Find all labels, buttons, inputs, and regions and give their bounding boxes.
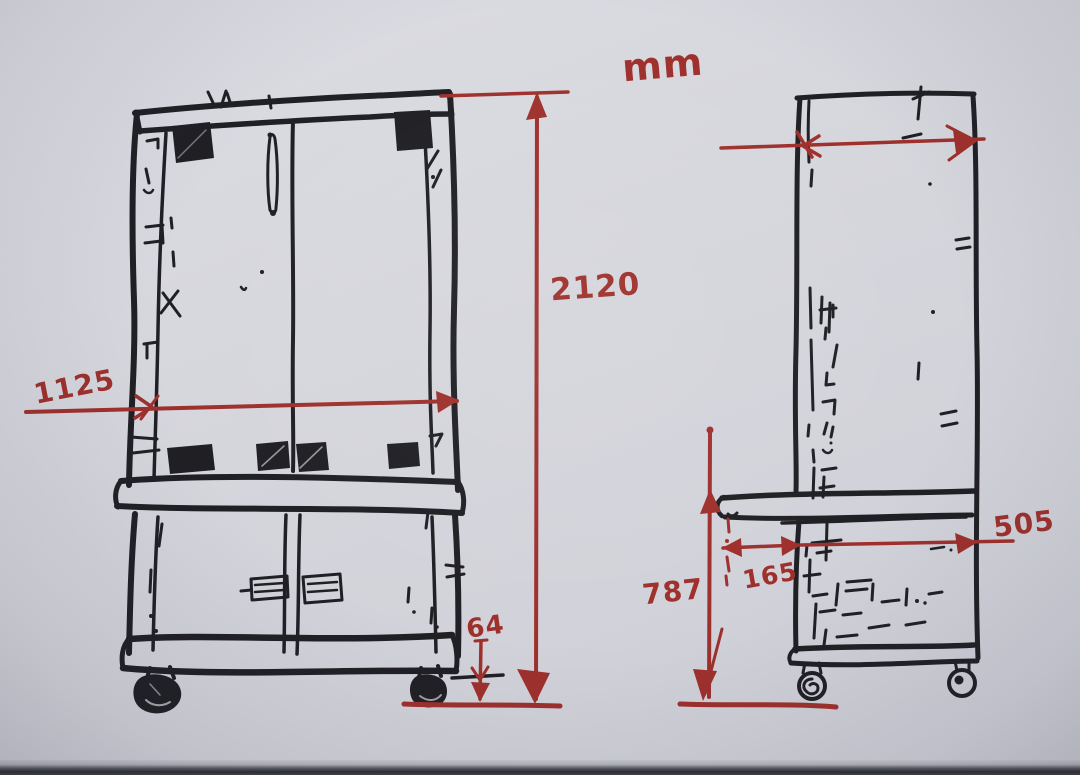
overall-width-value: 1125 — [31, 363, 118, 411]
sketch-photo: mm 2120 1125 64 — [0, 0, 1080, 775]
front-door-handles-lower — [241, 574, 342, 603]
front-door-handle-upper — [268, 133, 278, 217]
side-view — [717, 87, 978, 699]
side-note-scribbles — [804, 134, 970, 645]
front-hinge-blocks — [167, 110, 433, 474]
ground-lines — [404, 704, 836, 707]
dim-overhang-depth: 165 — [722, 519, 801, 595]
dim-overall-width: 1125 — [26, 363, 459, 419]
front-cabinet-outline — [116, 92, 464, 672]
dim-body-depth: 505 — [801, 504, 1056, 554]
photo-bottom-edge — [0, 760, 1080, 775]
dim-overall-height: 2120 — [441, 92, 642, 704]
dim-side-top-depth-line — [721, 126, 984, 160]
overall-height-value: 2120 — [549, 266, 642, 308]
unit-label: mm — [620, 39, 705, 90]
bench-height-value: 787 — [641, 572, 706, 611]
body-depth-value: 505 — [991, 504, 1056, 544]
unit-label-group: mm — [620, 39, 705, 90]
caster-height-value: 64 — [464, 610, 506, 645]
sketch-canvas: mm 2120 1125 64 — [0, 0, 1080, 775]
overhang-depth-value: 165 — [740, 557, 799, 595]
dim-bench-height: 787 — [641, 427, 722, 702]
